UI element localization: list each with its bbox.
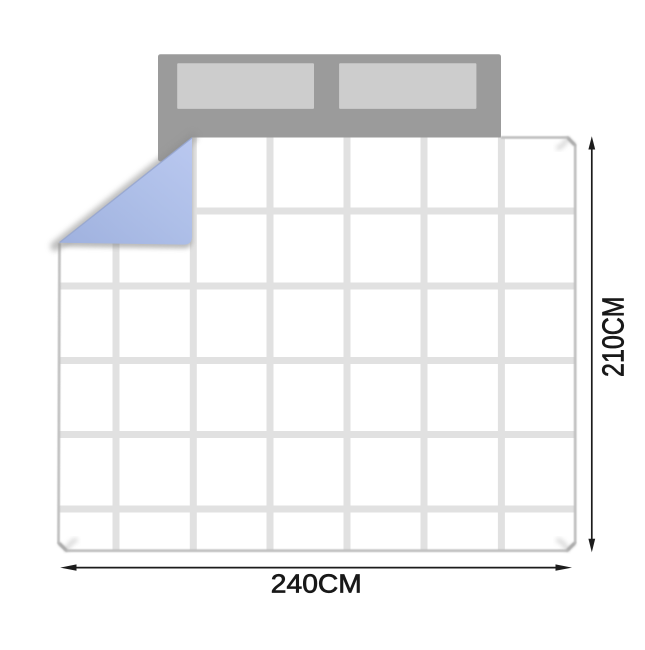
svg-text:240CM: 240CM: [271, 569, 362, 599]
svg-text:210CM: 210CM: [596, 296, 630, 377]
